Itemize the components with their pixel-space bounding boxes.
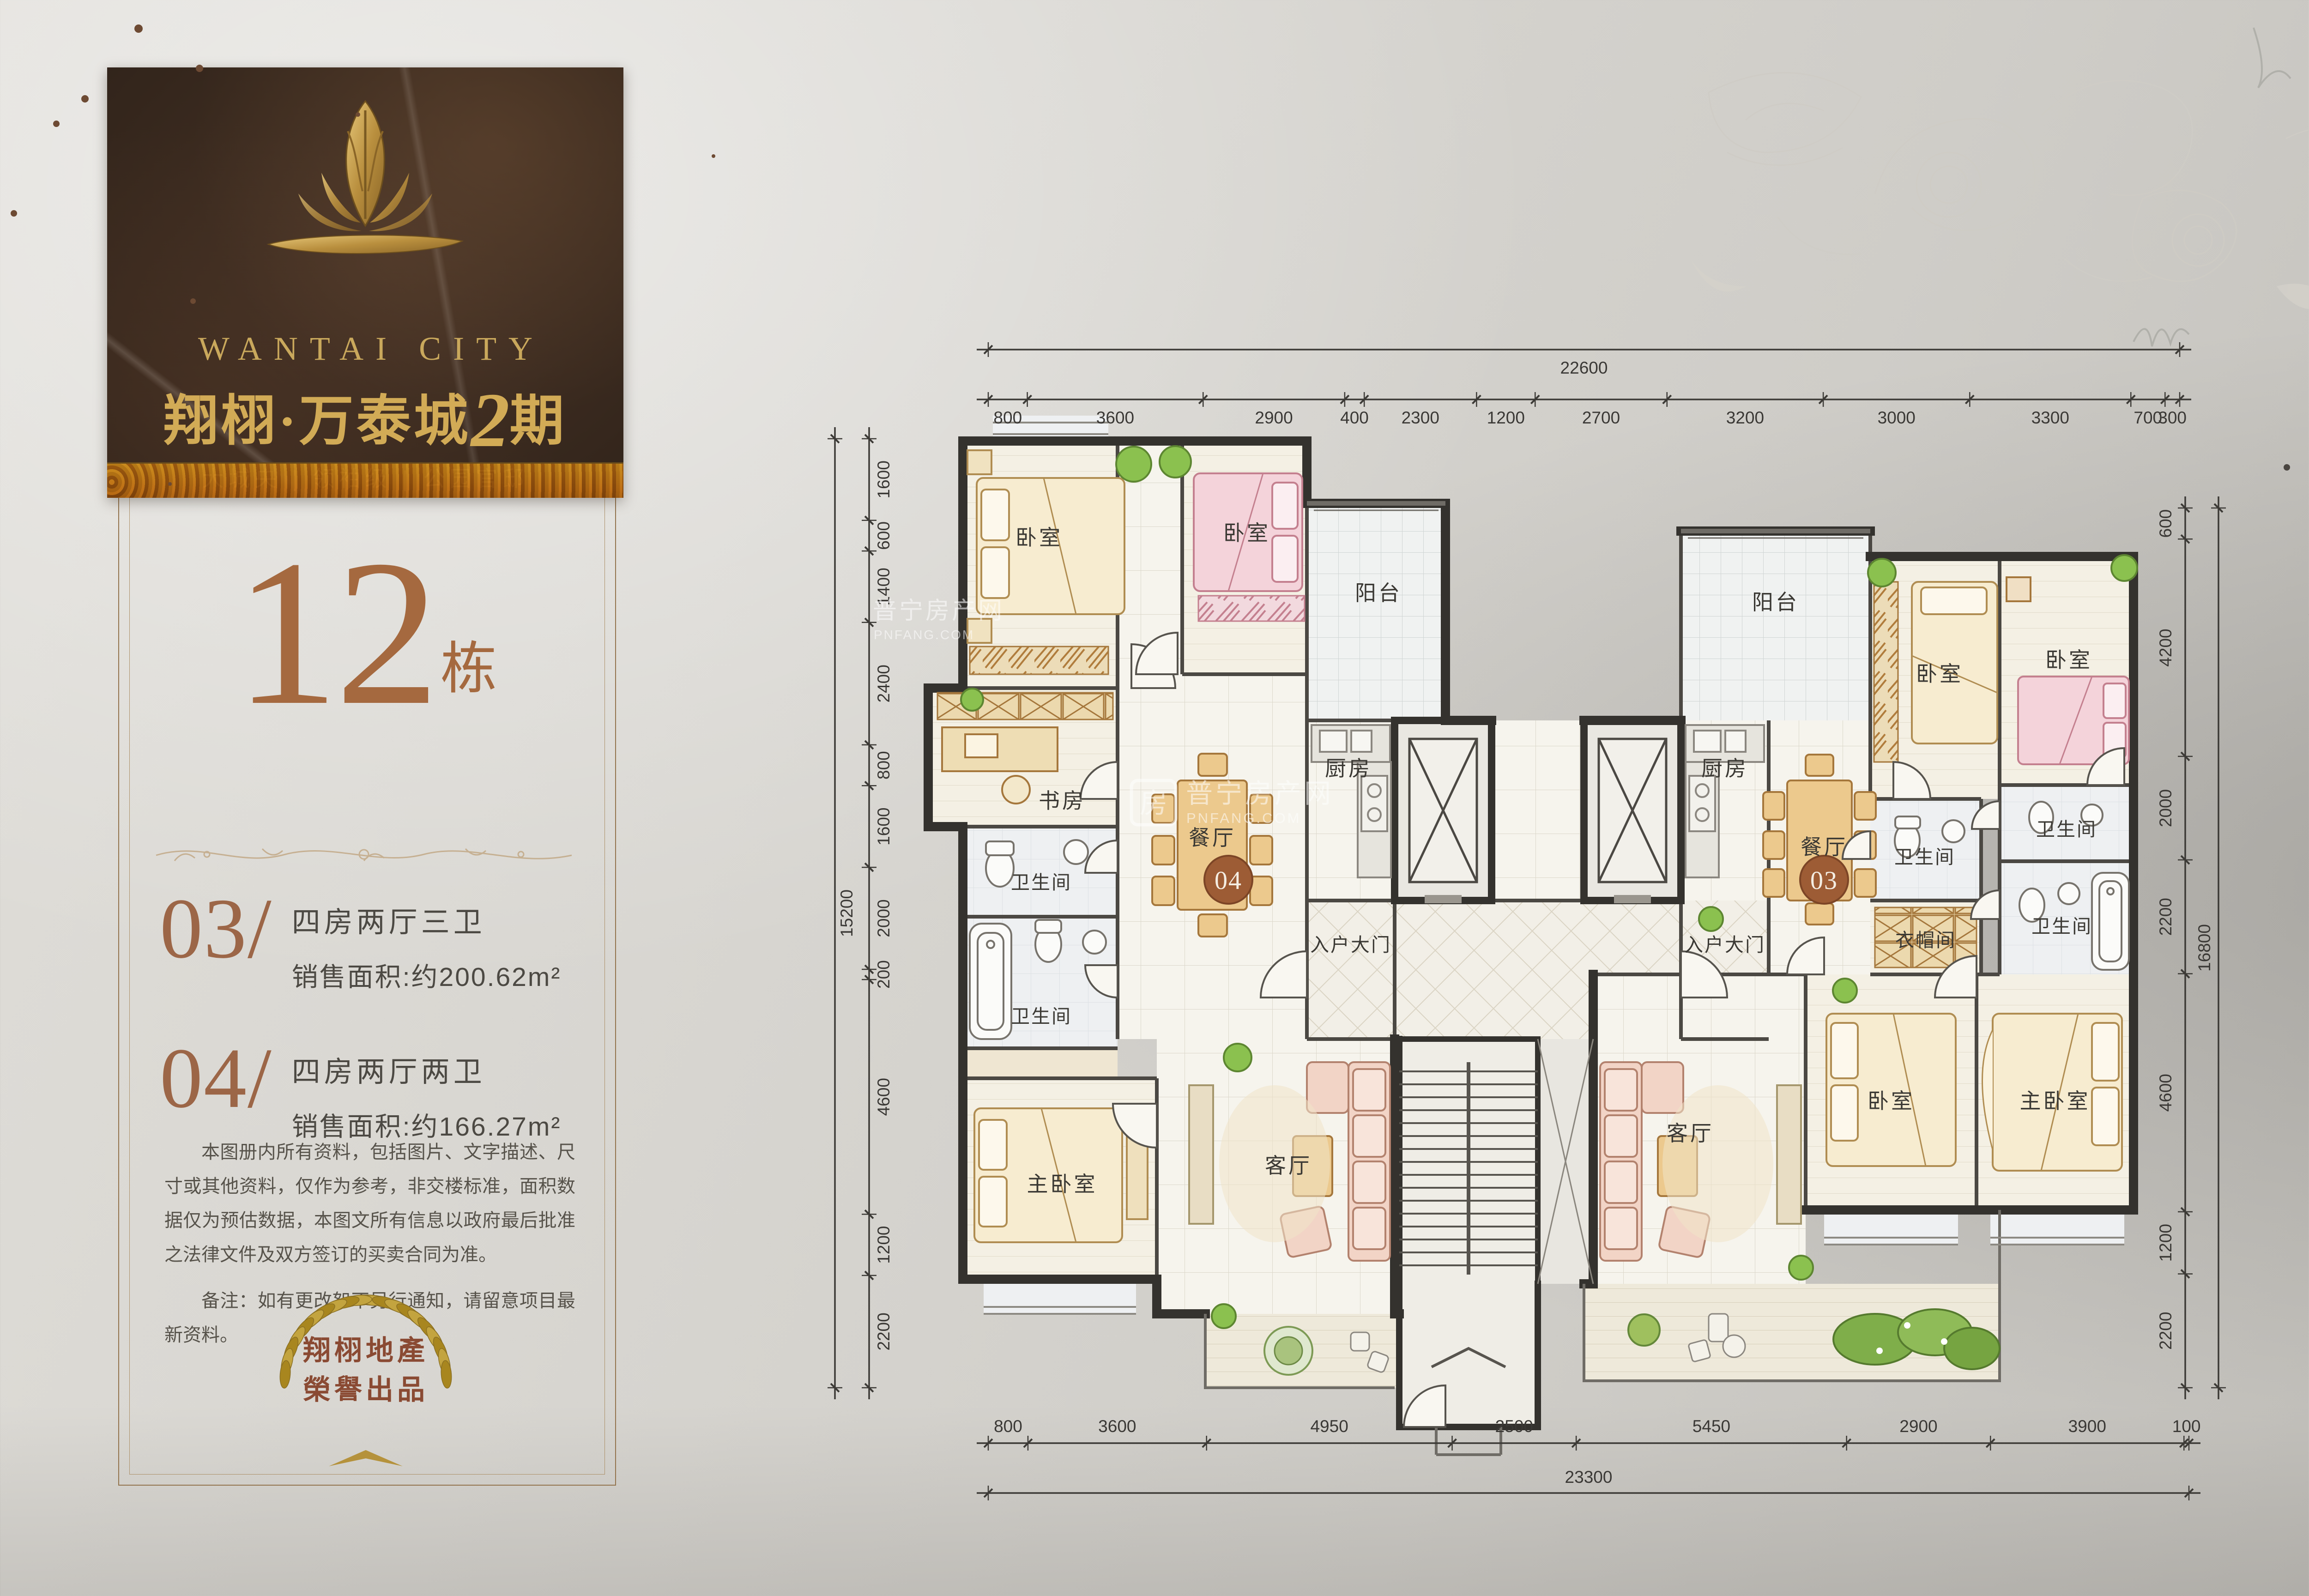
svg-text:1200: 1200 <box>1487 408 1525 427</box>
room-label-bathC-03: 卫生间 <box>2031 916 2092 937</box>
dim-chain-bottom: 80036004950250054502900390010023300 <box>977 1417 2200 1500</box>
room-label-bedroom2-04: 卧室 <box>1223 521 1270 545</box>
watermark2-name: 普宁房产网 <box>873 598 1004 624</box>
room-label-cloak-03: 衣帽间 <box>1895 930 1956 951</box>
svg-text:200: 200 <box>874 960 893 989</box>
svg-text:3900: 3900 <box>2068 1417 2106 1436</box>
svg-text:15200: 15200 <box>837 889 856 937</box>
photographed-floorplan-page: { "brand": { "title_en": "WANTAI CITY", … <box>0 0 2309 1596</box>
room-label-living-04: 客厅 <box>1265 1154 1312 1178</box>
unit-badge-03-label: 03 <box>1810 866 1838 895</box>
floorplan-drawing: 04 03 卧室 卧室 阳台 厨房 书房 餐厅 卫生间 卫生间 主卧室 客厅 入… <box>0 0 2309 1596</box>
svg-text:2900: 2900 <box>1899 1417 1937 1436</box>
svg-text:4600: 4600 <box>874 1078 893 1116</box>
svg-text:3600: 3600 <box>1096 408 1134 427</box>
dim-chain-top: 8003600290040023001200270032003000330070… <box>977 342 2191 427</box>
room-label-bathB-03: 卫生间 <box>2036 819 2097 840</box>
room-label-master-04: 主卧室 <box>1027 1172 1098 1196</box>
dim-chain-right: 60042002000220046001200220016800 <box>2156 496 2226 1399</box>
svg-text:300: 300 <box>2158 408 2187 427</box>
svg-text:4200: 4200 <box>2156 629 2175 666</box>
svg-text:1600: 1600 <box>874 460 893 498</box>
svg-text:100: 100 <box>2172 1417 2201 1436</box>
svg-text:2200: 2200 <box>2156 1312 2175 1350</box>
svg-text:2200: 2200 <box>2156 898 2175 936</box>
room-label-entrance-03: 入户大门 <box>1684 934 1765 955</box>
svg-text:800: 800 <box>993 408 1022 427</box>
room-label-living-03: 客厅 <box>1667 1121 1714 1145</box>
room-label-master-03: 主卧室 <box>2020 1089 2091 1113</box>
room-label-bathA-03: 卫生间 <box>1894 846 1955 868</box>
svg-text:1200: 1200 <box>874 1226 893 1263</box>
unit-badge-04: 04 <box>1204 856 1252 904</box>
unit-badge-03: 03 <box>1800 856 1848 904</box>
room-label-balcony-03: 阳台 <box>1752 590 1799 614</box>
svg-text:3600: 3600 <box>1098 1417 1136 1436</box>
svg-text:800: 800 <box>994 1417 1022 1436</box>
room-label-kitchen-03: 厨房 <box>1701 756 1748 780</box>
room-label-bedroom-p-03: 卧室 <box>2045 648 2092 672</box>
svg-text:3200: 3200 <box>1726 408 1764 427</box>
pnfang-logo-char: 房 <box>1140 788 1167 819</box>
room-label-kitchen-04: 厨房 <box>1325 756 1372 780</box>
room-label-bath1-04: 卫生间 <box>1011 872 1072 893</box>
unit-badge-04-label: 04 <box>1215 866 1242 895</box>
room-label-bedroom-b-03: 卧室 <box>1868 1089 1915 1113</box>
watermark2-domain: PNFANG.COM <box>874 628 974 642</box>
svg-text:2900: 2900 <box>1255 408 1293 427</box>
svg-text:2700: 2700 <box>1582 408 1620 427</box>
svg-text:22600: 22600 <box>1560 358 1608 377</box>
svg-text:600: 600 <box>874 521 893 550</box>
watermark-domain: PNFANG.COM <box>1186 810 1301 826</box>
watermark-name: 普宁房产网 <box>1186 779 1334 809</box>
room-label-study: 书房 <box>1039 789 1086 813</box>
svg-text:4950: 4950 <box>1310 1417 1348 1436</box>
svg-text:2300: 2300 <box>1402 408 1439 427</box>
svg-text:600: 600 <box>2156 509 2175 538</box>
room-label-dining-03: 餐厅 <box>1801 835 1848 859</box>
svg-text:2000: 2000 <box>2156 789 2175 827</box>
svg-text:2000: 2000 <box>874 899 893 937</box>
svg-text:3000: 3000 <box>1878 408 1916 427</box>
pencil-scribbles <box>2134 28 2309 716</box>
svg-text:16800: 16800 <box>2195 924 2214 972</box>
svg-text:400: 400 <box>1340 408 1369 427</box>
paper-specks <box>11 24 2290 486</box>
room-label-bedroom1-04: 卧室 <box>1015 526 1063 550</box>
svg-text:3300: 3300 <box>2031 408 2069 427</box>
svg-text:1200: 1200 <box>2156 1224 2175 1262</box>
svg-text:4600: 4600 <box>2156 1074 2175 1112</box>
svg-text:23300: 23300 <box>1565 1468 1613 1487</box>
svg-text:2200: 2200 <box>874 1312 893 1350</box>
svg-text:5450: 5450 <box>1692 1417 1730 1436</box>
room-label-bath2-04: 卫生间 <box>1011 1006 1072 1027</box>
room-label-bedroom-y-03: 卧室 <box>1916 662 1963 686</box>
svg-text:1600: 1600 <box>874 808 893 846</box>
room-label-entrance-04: 入户大门 <box>1310 934 1391 955</box>
floral-ornament <box>1690 73 2309 309</box>
room-label-balcony-04: 阳台 <box>1355 581 1402 605</box>
dim-chain-left: 1600600140024008001600200020046001200220… <box>828 427 893 1399</box>
svg-text:2500: 2500 <box>1495 1417 1533 1436</box>
svg-text:2400: 2400 <box>874 665 893 702</box>
svg-text:800: 800 <box>874 751 893 780</box>
room-label-dining-04: 餐厅 <box>1189 826 1236 850</box>
